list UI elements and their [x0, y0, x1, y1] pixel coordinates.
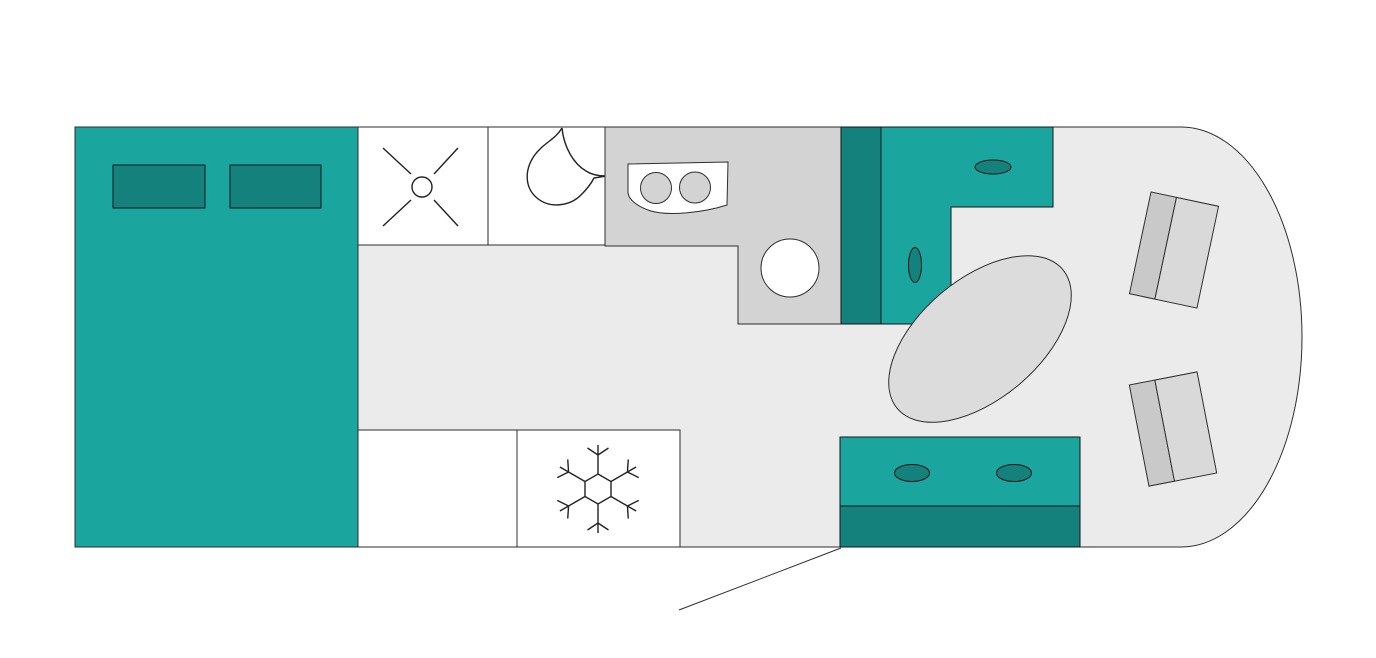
- entry-door-swing-line: [679, 548, 841, 610]
- sofa-bench-seat: [840, 437, 1080, 506]
- sofa-bench: [840, 437, 1080, 547]
- sideboard-knob-horizontal: [975, 160, 1011, 174]
- hob-burner-left: [641, 173, 672, 204]
- pillow-left: [113, 165, 205, 208]
- sofa-button-right: [997, 465, 1032, 482]
- kitchen-sink: [761, 239, 819, 297]
- toilet-room: [488, 127, 605, 245]
- floorplan-page: [0, 0, 1376, 658]
- shower-cubicle: [358, 127, 488, 245]
- tall-cabinet: [841, 127, 881, 324]
- floorplan-canvas: [0, 0, 1376, 658]
- wardrobe-cabinet: [358, 430, 517, 547]
- hob-burner-right: [680, 172, 711, 203]
- sideboard-knob-vertical: [909, 248, 922, 283]
- sofa-bench-backrest: [840, 506, 1080, 547]
- sofa-button-left: [895, 465, 930, 482]
- pillow-right: [230, 165, 321, 208]
